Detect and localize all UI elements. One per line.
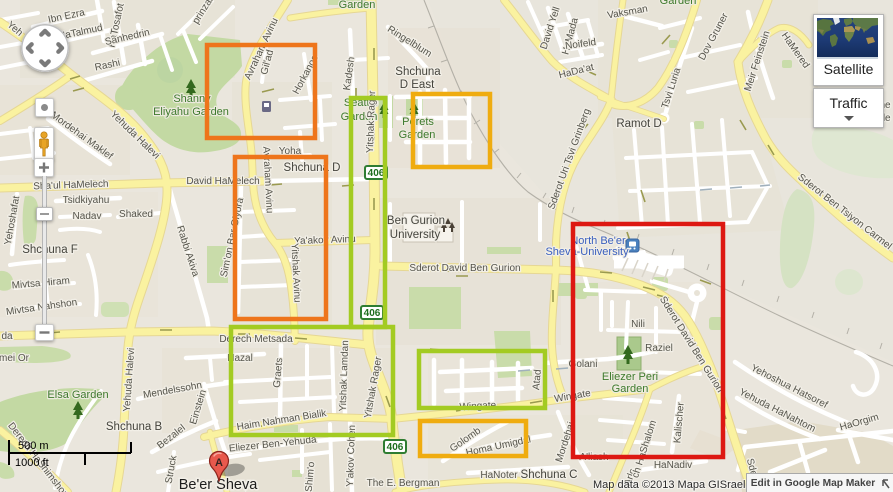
svg-text:HaNoter: HaNoter [480,470,518,481]
svg-text:Eliyahu Garden: Eliyahu Garden [153,106,229,118]
svg-text:Perets: Perets [402,116,434,128]
svg-text:Garden: Garden [612,383,649,395]
svg-text:The E. Bergman: The E. Bergman [367,478,440,489]
svg-text:Shchuna D: Shchuna D [284,162,341,174]
svg-text:A: A [215,457,223,469]
svg-text:Ramot D: Ramot D [616,118,661,130]
svg-text:mei Or: mei Or [0,353,30,364]
svg-text:Sderot David Ben Gurion: Sderot David Ben Gurion [409,263,520,274]
svg-text:Shchuna C: Shchuna C [521,469,578,481]
svg-text:Shchuna: Shchuna [395,66,441,78]
svg-text:da: da [1,331,13,342]
svg-text:Tsidkiyahu: Tsidkiyahu [63,195,110,206]
svg-text:Shaked: Shaked [119,209,153,220]
svg-text:David HaMelech: David HaMelech [186,176,259,187]
svg-text:Garden: Garden [660,0,697,7]
svg-text:Nili: Nili [631,319,645,330]
svg-text:Nadav: Nadav [73,211,102,222]
svg-text:Shchuna B: Shchuna B [106,421,163,433]
svg-text:HaNadiv: HaNadiv [654,460,692,471]
svg-text:Map data ©2013 Mapa GISrael -: Map data ©2013 Mapa GISrael - [593,479,752,491]
svg-text:Garden: Garden [399,129,436,141]
svg-text:Garden: Garden [339,0,376,11]
svg-text:1000 ft: 1000 ft [15,457,49,466]
svg-text:406: 406 [387,442,404,453]
svg-text:500 m: 500 m [18,440,49,452]
svg-text:D East: D East [400,79,435,91]
svg-text:406: 406 [368,168,385,179]
svg-text:Shchuna F: Shchuna F [22,244,78,256]
svg-text:Sheva-University: Sheva-University [545,246,629,258]
svg-text:Atad: Atad [531,369,544,390]
svg-text:Ben Gurion: Ben Gurion [387,215,445,227]
svg-text:Elsa Garden: Elsa Garden [47,389,108,401]
svg-text:University: University [390,229,441,241]
svg-text:Eliezer Peri: Eliezer Peri [602,371,658,383]
svg-text:Raziel: Raziel [645,343,673,354]
svg-text:406: 406 [364,308,381,319]
